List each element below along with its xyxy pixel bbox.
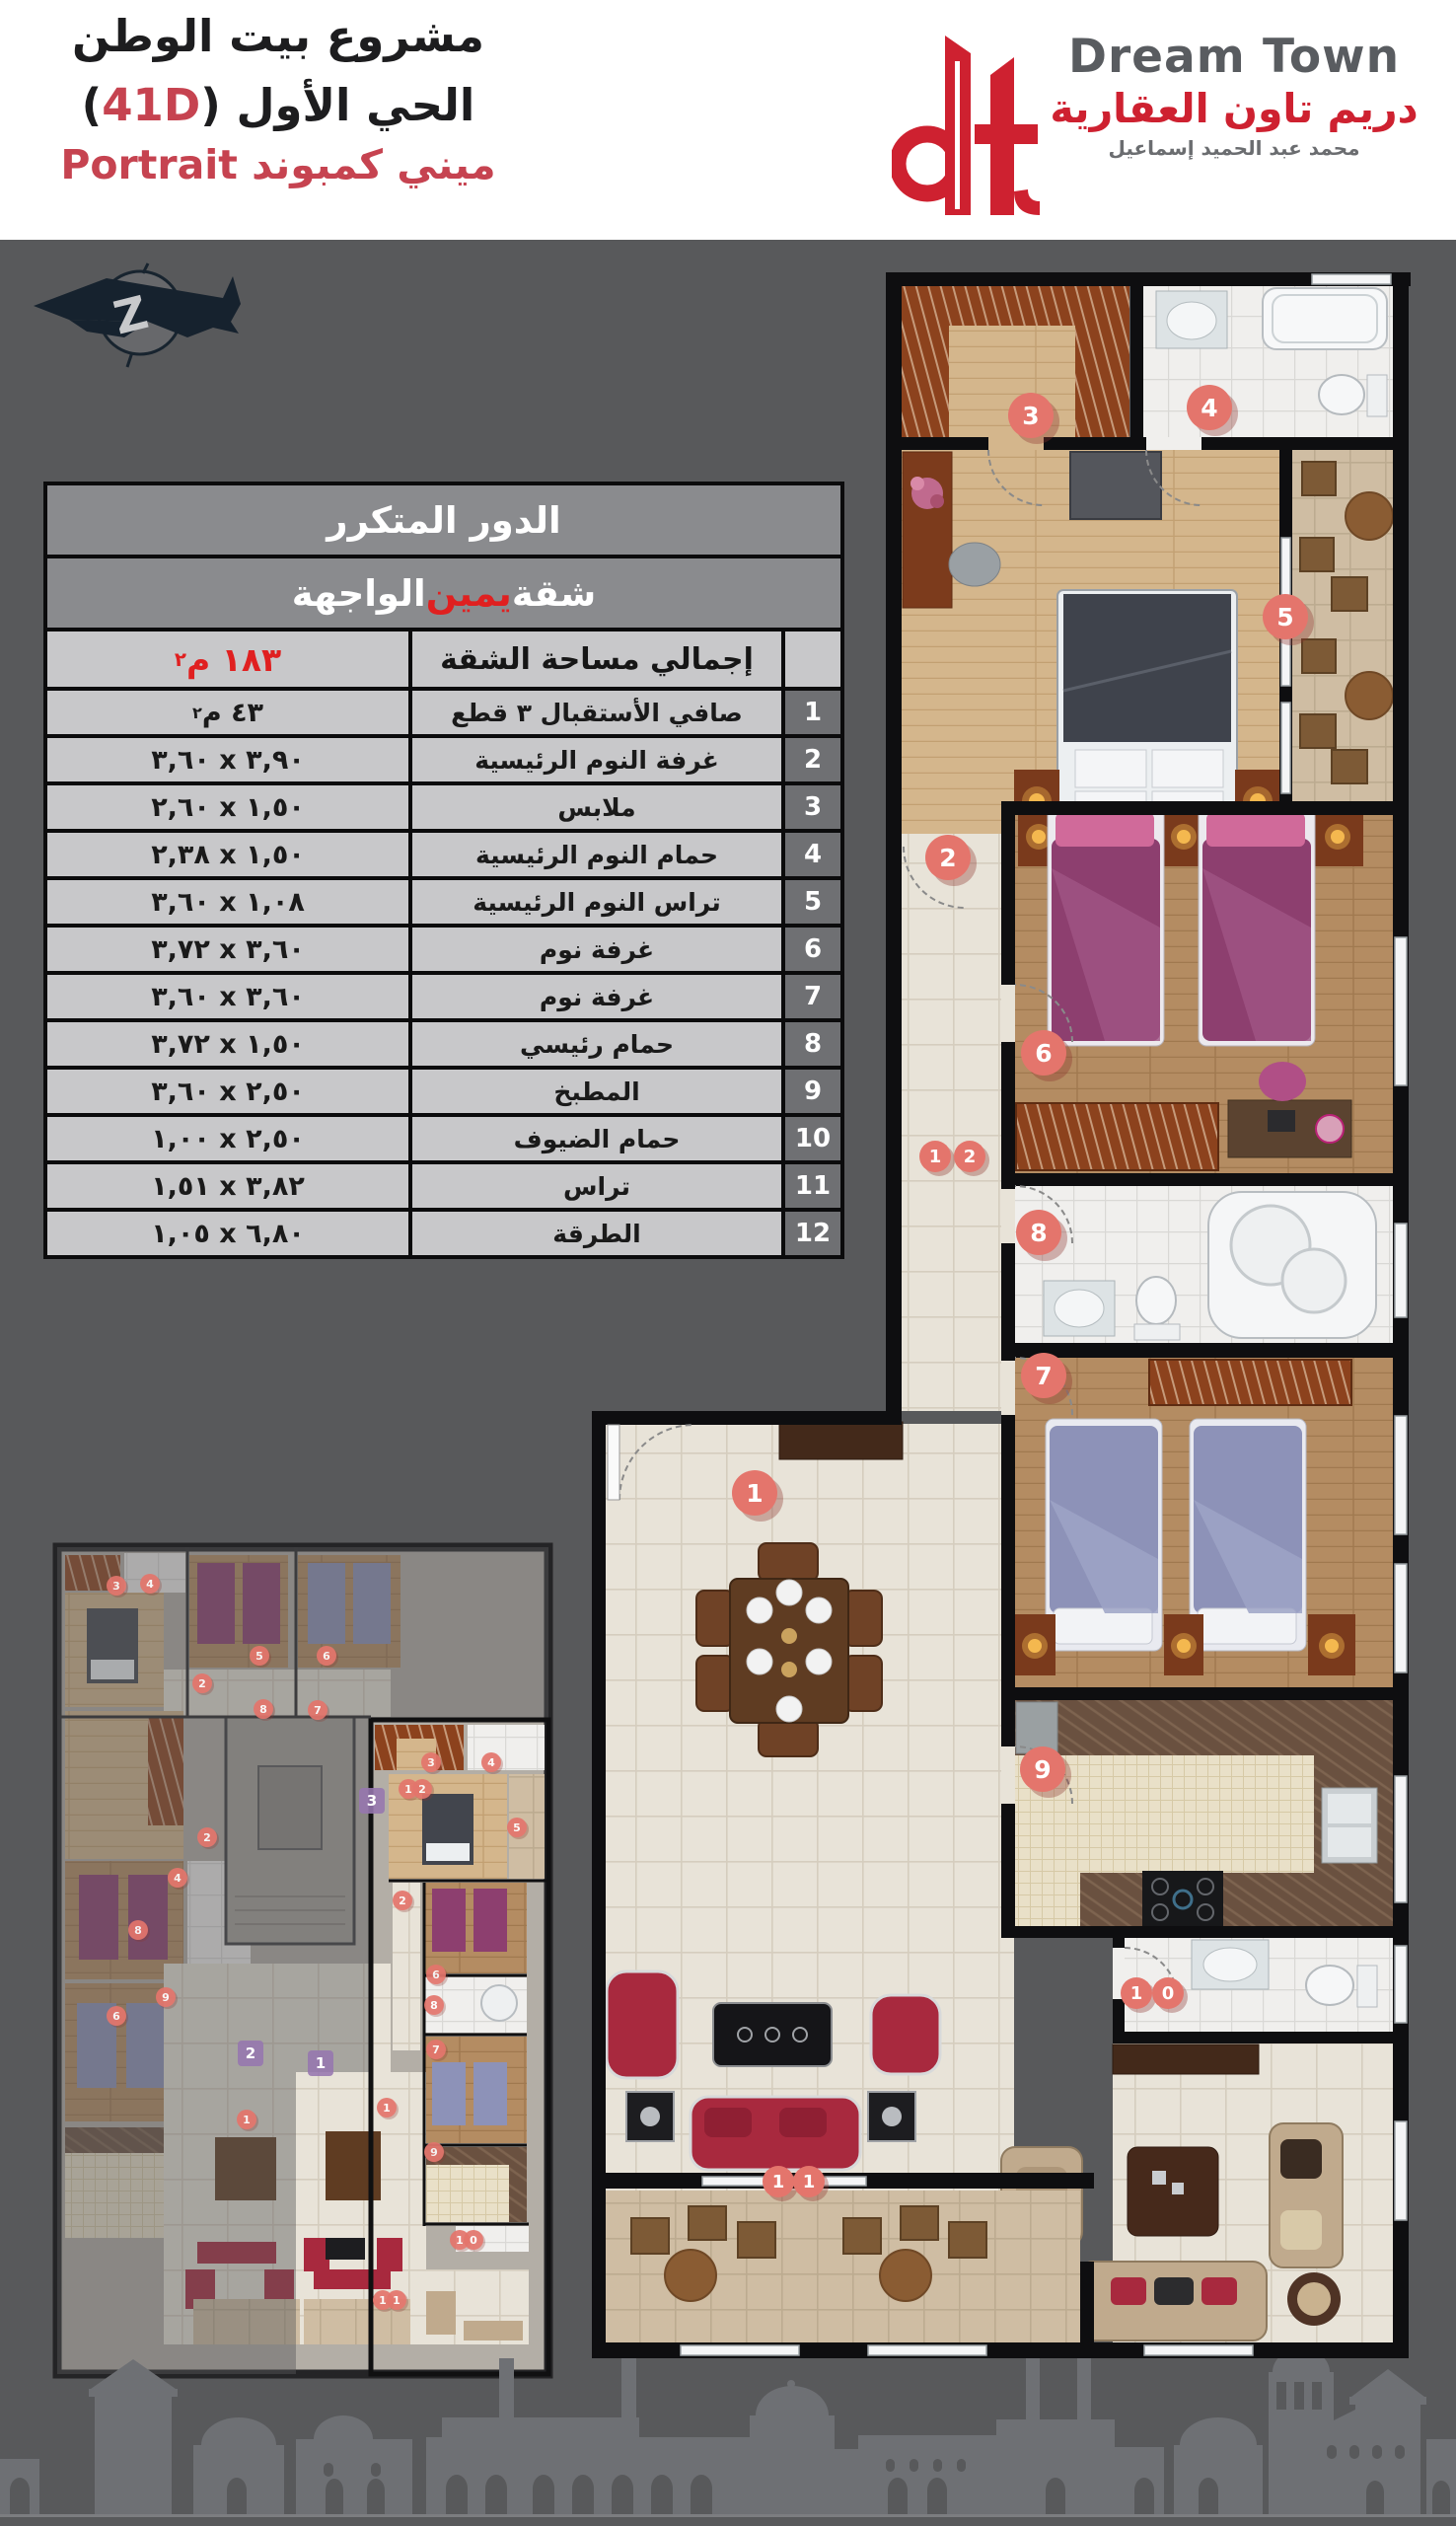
main-floor-plan — [582, 266, 1426, 2363]
building-overview-plan — [49, 1539, 557, 2383]
header-band: مشروع بيت الوطن الحي الأول (41D) ميني كم… — [0, 0, 1456, 240]
compass-icon: Z — [30, 259, 247, 372]
dimension-cell: ١,٠٥ x ٦,٨٠ — [47, 1212, 408, 1255]
district-code: 41D — [102, 79, 200, 131]
project-title-line2: الحي الأول (41D) — [8, 71, 548, 140]
dimension-cell: ٣,٦٠ x ٢,٥٠ — [47, 1070, 408, 1113]
city-skyline-silhouette — [0, 2358, 1456, 2526]
logo-owner-name: محمد عبد الحميد إسماعيل — [1037, 136, 1431, 160]
project-title-line1: مشروع بيت الوطن — [8, 2, 548, 71]
terrace-master — [1292, 439, 1393, 804]
dimension-cell: ١,٥١ x ٣,٨٢ — [47, 1164, 408, 1208]
floorplan-poster: { "colors": { "page_background": "#58595… — [0, 0, 1456, 2526]
entry-door-leaf — [608, 1425, 619, 1500]
room-dressing — [893, 279, 1129, 439]
dimension-cell: ١,٠٠ x ٢,٥٠ — [47, 1117, 408, 1160]
dimension-cell: ٢,٦٠ x ١,٥٠ — [47, 785, 408, 829]
dimension-cell: ٢,٣٨ x ١,٥٠ — [47, 833, 408, 876]
room-master-bathroom — [1134, 279, 1393, 439]
terrace-11 — [605, 2191, 1080, 2343]
room-kitchen — [1014, 1700, 1393, 1937]
dimension-cell: ٤٣ م٢ — [47, 691, 408, 734]
dream-town-logo: Dream Town دريم تاون العقارية محمد عبد ا… — [874, 8, 1446, 233]
room-bedroom-6 — [1014, 802, 1393, 1173]
dimension-cell: ٣,٦٠ x ٣,٦٠ — [47, 975, 408, 1018]
dimension-cell: ٣,٧٢ x ١,٥٠ — [47, 1022, 408, 1066]
logo-name-en: Dream Town — [1037, 30, 1431, 84]
hallway — [901, 834, 1001, 1411]
apartment-side-highlight: يمين — [426, 572, 512, 615]
overview-dim-overlay — [57, 1547, 296, 2374]
logo-texts: Dream Town دريم تاون العقارية محمد عبد ا… — [1037, 30, 1431, 160]
dimension-cell: ٣,٦٠ x ١,٠٨ — [47, 880, 408, 924]
room-bedroom-7 — [1014, 1358, 1393, 1687]
dream-town-monogram-icon — [892, 18, 1040, 220]
project-title: مشروع بيت الوطن الحي الأول (41D) ميني كم… — [8, 2, 548, 190]
dimension-cell: ٣,٦٠ x ٣,٩٠ — [47, 738, 408, 781]
room-guest-bathroom — [1113, 1937, 1393, 2032]
logo-name-ar: دريم تاون العقارية — [1037, 84, 1431, 134]
total-area-value: ١٨٣ م٢ — [47, 631, 408, 687]
project-title-line3: ميني كمبوند Portrait — [8, 140, 548, 190]
dimension-cell: ٣,٧٢ x ٣,٦٠ — [47, 928, 408, 971]
room-main-bathroom — [1014, 1186, 1393, 1346]
